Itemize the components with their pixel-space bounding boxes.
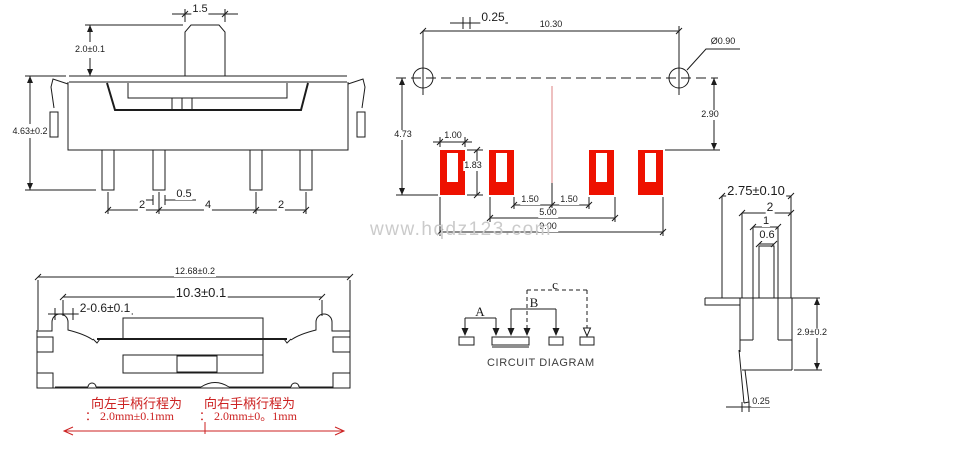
dim-side-step-width: 2 <box>766 201 775 214</box>
note-left-travel-line2: ： 2.0mm±0.1mm <box>84 410 175 423</box>
dim-side-top-width: 2.75±0.10 <box>726 184 786 198</box>
dim-slot-length: 10.3±0.1 <box>175 286 228 300</box>
dim-notch: 2-0.6±0.1 <box>79 302 132 315</box>
dim-offset: 0.25 <box>480 11 505 24</box>
dim-span-inner: 5.00 <box>538 208 558 218</box>
front-view-linework <box>25 9 365 214</box>
circuit-label-c: c <box>551 278 559 292</box>
circuit-label-b: B <box>529 296 540 310</box>
dim-pitch-a: 1.50 <box>520 195 540 205</box>
dim-side-stem-width: 1 <box>762 215 770 227</box>
dim-pad-width: 1.00 <box>443 131 463 141</box>
technical-drawing-page: 1.5 2.0±0.1 4.63±0.2 2 0.5 4 2 0.25 10.3… <box>0 0 960 455</box>
dim-pin-pitch-center: 4 <box>204 199 212 211</box>
dim-side-pin-thickness: 0.25 <box>751 397 771 407</box>
dim-overall-length: 12.68±0.2 <box>174 267 216 277</box>
dim-knob-width: 1.5 <box>191 3 208 15</box>
note-right-travel-line2: ： 2.0mm±0。1mm <box>198 410 298 423</box>
circuit-diagram-title: CIRCUIT DIAGRAM <box>487 357 595 369</box>
dim-side-knob-width: 0.6 <box>758 229 775 241</box>
dim-side-body-height: 2.9±0.2 <box>796 328 828 338</box>
dim-hole-diameter: Ø0.90 <box>710 37 737 47</box>
circuit-label-a: A <box>474 305 485 319</box>
dim-pin-pitch-left: 2 <box>138 199 146 211</box>
dim-pitch-b: 1.50 <box>559 195 579 205</box>
dim-pad-height: 1.83 <box>463 161 483 171</box>
dim-overall-height: 4.73 <box>393 130 413 140</box>
dim-pin-width: 0.5 <box>175 188 192 200</box>
dim-hole-pitch: 10.30 <box>539 20 564 30</box>
dim-body-height: 4.63±0.2 <box>12 127 49 137</box>
dim-hole-to-pad: 2.90 <box>700 110 720 120</box>
dim-knob-height: 2.0±0.1 <box>74 45 106 55</box>
dim-pin-pitch-right: 2 <box>277 199 285 211</box>
watermark-text: www.hqdz123.com <box>370 219 552 241</box>
travel-arrow <box>64 422 344 435</box>
